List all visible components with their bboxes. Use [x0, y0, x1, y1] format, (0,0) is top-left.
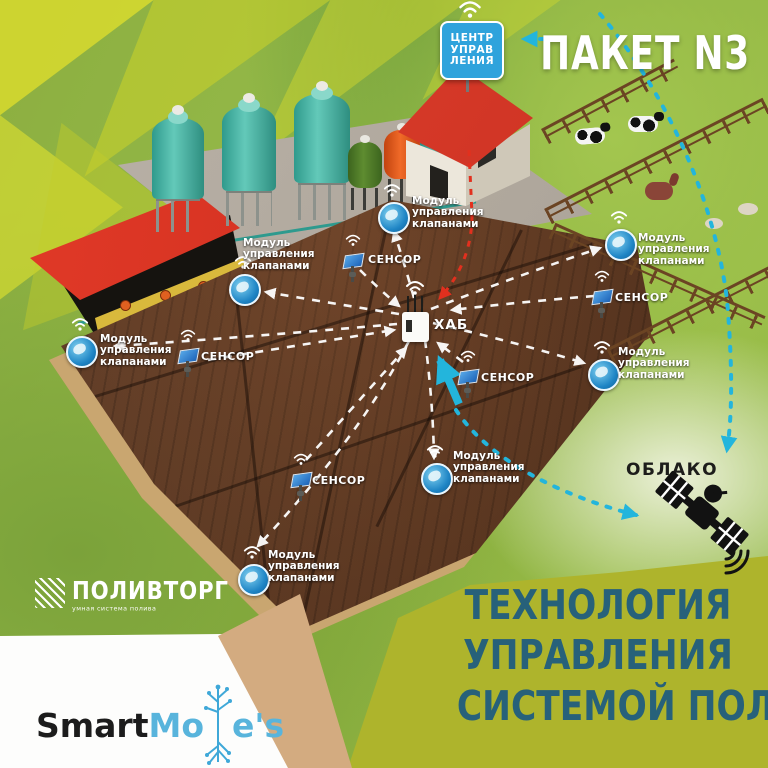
- sign-line: ЦЕНТР: [442, 33, 502, 45]
- valve-module-node: Модуль управления клапанами: [421, 463, 453, 495]
- valve-module-node: Модуль управления клапанами: [229, 274, 261, 306]
- wifi-icon: [405, 280, 425, 295]
- smartmoles-logo: SmartMo e's: [36, 682, 284, 768]
- valve-module-label: Модуль управления клапанами: [412, 196, 484, 230]
- sensor-post: [466, 382, 469, 398]
- valve-module-node: Модуль управления клапанами: [378, 202, 410, 234]
- wifi-icon: [383, 183, 401, 197]
- smartmoles-part2: Mo: [148, 706, 204, 745]
- wifi-icon: [345, 234, 361, 246]
- title-line: УПРАВЛЕНИЯ: [457, 630, 739, 680]
- sensor-label: СЕНСОР: [615, 292, 668, 304]
- sign-line: ЛЕНИЯ: [442, 56, 502, 68]
- sensor-post: [186, 361, 189, 377]
- wifi-icon: [610, 210, 628, 224]
- polivtorg-logo: ПОЛИВТОРГ умная система полива: [35, 578, 256, 614]
- globe-icon: [421, 463, 453, 495]
- hub-device: [402, 312, 429, 342]
- title-line: ТЕХНОЛОГИЯ: [457, 580, 739, 630]
- valve-module-label: Модуль управления клапанами: [268, 550, 340, 584]
- valve-module-label: Модуль управления клапанами: [638, 233, 710, 267]
- smartmoles-part1: Smart: [36, 706, 148, 745]
- globe-icon: [229, 274, 261, 306]
- sensor-post: [600, 302, 603, 318]
- sensor-label: СЕНСОР: [201, 351, 254, 363]
- wifi-icon: [458, 0, 482, 18]
- control-center-sign: ЦЕНТР УПРАВ ЛЕНИЯ: [440, 21, 504, 80]
- valve-module-node: Модуль управления клапанами: [588, 359, 620, 391]
- satellite-icon: [630, 455, 768, 585]
- valve-module-label: Модуль управления клапанами: [453, 451, 525, 485]
- smartmoles-part3: e's: [232, 706, 284, 745]
- globe-icon: [378, 202, 410, 234]
- valve-module-node: Модуль управления клапанами: [605, 229, 637, 261]
- wifi-icon: [180, 329, 196, 341]
- valve-module-label: Модуль управления клапанами: [100, 334, 172, 368]
- poster-title: ТЕХНОЛОГИЯ УПРАВЛЕНИЯ СИСТЕМОЙ ПОЛИВА: [457, 580, 739, 731]
- poster: ХАБ Модуль управления клапанами Модуль у…: [0, 0, 768, 768]
- sensor-post: [299, 485, 302, 501]
- polivtorg-tagline: умная система полива: [72, 605, 220, 612]
- sensor-label: СЕНСОР: [481, 372, 534, 384]
- globe-icon: [66, 336, 98, 368]
- polivtorg-name: ПОЛИВТОРГ: [72, 578, 229, 603]
- sensor-label: СЕНСОР: [368, 254, 421, 266]
- package-title: ПАКЕТ N3: [540, 26, 750, 80]
- wifi-icon: [243, 545, 261, 559]
- wifi-icon: [426, 444, 444, 458]
- globe-icon: [605, 229, 637, 261]
- globe-icon: [588, 359, 620, 391]
- wifi-icon: [460, 350, 476, 362]
- valve-module-label: Модуль управления клапанами: [243, 238, 315, 272]
- hatch-logo-icon: [35, 578, 65, 608]
- wifi-icon: [293, 453, 309, 465]
- wifi-icon: [594, 270, 610, 282]
- sensor-label: СЕНСОР: [312, 475, 365, 487]
- sensor-post: [351, 266, 354, 282]
- title-line: СИСТЕМОЙ ПОЛИВА: [457, 681, 739, 731]
- wifi-icon: [71, 317, 89, 331]
- valve-module-node: Модуль управления клапанами: [66, 336, 98, 368]
- wifi-icon: [593, 340, 611, 354]
- hub-label: ХАБ: [434, 317, 468, 333]
- valve-module-label: Модуль управления клапанами: [618, 347, 690, 381]
- circuit-tree-icon: [201, 682, 235, 768]
